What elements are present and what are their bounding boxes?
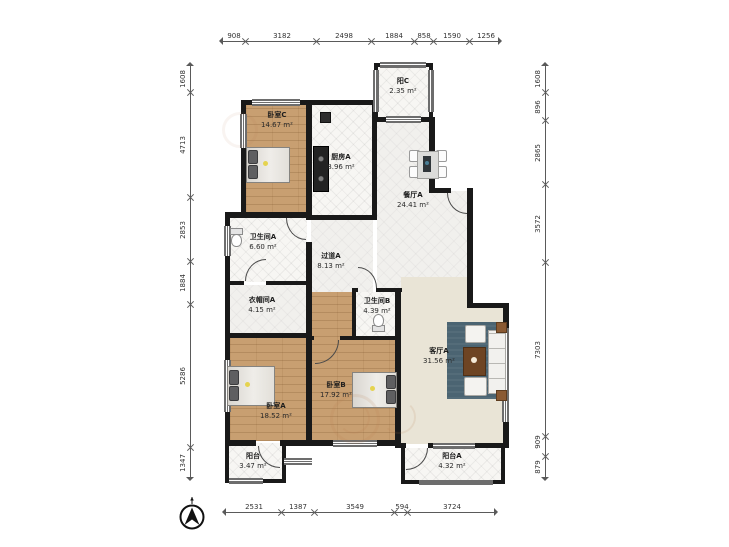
room-area: 4.39 m² (347, 306, 407, 316)
dimension-value: 3572 (533, 204, 543, 244)
dimension-tick (312, 37, 321, 46)
dimension-value: 2865 (533, 133, 543, 173)
window (380, 62, 426, 68)
kitchen-fixture (320, 112, 331, 123)
pillow (248, 165, 258, 179)
room-area: 4.15 m² (232, 305, 292, 315)
arrow-right-icon (494, 508, 498, 516)
room-name: 衣帽间A (232, 295, 292, 305)
room-label-bath-a: 卫生间A 6.60 m² (233, 232, 293, 252)
room-label-dining-a: 餐厅A 24.41 m² (383, 190, 443, 210)
room-area: 8.96 m² (312, 162, 370, 172)
floorplan-canvas: 卧室C 14.67 m² 厨房A 8.96 m² 阳C 2.35 m² 餐厅A … (0, 0, 729, 547)
room-name: 卫生间A (233, 232, 293, 242)
floor-living-a-upper (401, 277, 467, 307)
room-label-balcony: 阳台 3.47 m² (223, 451, 283, 471)
coffee-table-decor (471, 357, 477, 363)
room-area: 2.35 m² (375, 86, 431, 96)
dimension-value: 908 (214, 31, 254, 41)
room-label-bedroom-a: 卧室A 18.52 m² (246, 401, 306, 421)
pillow (248, 150, 258, 164)
wall (467, 188, 473, 308)
dimension-value: 1884 (178, 263, 188, 303)
room-area: 18.52 m² (246, 411, 306, 421)
dimension-tick (541, 180, 550, 189)
room-name: 卧室B (306, 380, 366, 390)
dimension-line (222, 41, 501, 42)
dimension-value: 2853 (178, 210, 188, 250)
side-table (496, 390, 507, 401)
room-area: 8.13 m² (301, 261, 361, 271)
room-area: 24.41 m² (383, 200, 443, 210)
room-area: 6.60 m² (233, 242, 293, 252)
window (386, 116, 421, 123)
dining-table (417, 151, 439, 179)
wall (225, 281, 244, 285)
wall (225, 440, 256, 446)
armchair (465, 325, 486, 343)
room-label-hallway-a: 过道A 8.13 m² (301, 251, 361, 271)
room-label-living-a: 客厅A 31.56 m² (409, 346, 469, 366)
dimension-line (545, 65, 546, 480)
room-label-bath-b: 卫生间B 4.39 m² (347, 296, 407, 316)
dimension-value: 1387 (278, 502, 318, 512)
watermark-circle (222, 112, 258, 148)
pillow (229, 370, 239, 385)
wall (501, 448, 505, 484)
watermark-swirl (338, 402, 370, 434)
room-area: 4.32 m² (422, 461, 482, 471)
room-label-balcony-c: 阳C 2.35 m² (375, 76, 431, 96)
wall (376, 288, 402, 292)
dimension-value: 1347 (178, 443, 188, 483)
room-label-balcony-a: 阳台A 4.32 m² (422, 451, 482, 471)
room-name: 客厅A (409, 346, 469, 356)
dimension-value: 1256 (466, 31, 506, 41)
window (252, 99, 300, 106)
window (433, 443, 475, 449)
wall (266, 281, 310, 285)
bed-cushion (263, 161, 268, 166)
room-name: 过道A (301, 251, 361, 261)
room-area: 31.56 m² (409, 356, 469, 366)
dimension-value: 2531 (234, 502, 274, 512)
sofa (488, 330, 506, 394)
room-name: 餐厅A (383, 190, 443, 200)
dimension-value: 879 (533, 447, 543, 487)
wall (374, 117, 386, 122)
room-label-closet-a: 衣帽间A 4.15 m² (232, 295, 292, 315)
dimension-value: 3724 (432, 502, 472, 512)
room-name: 厨房A (312, 152, 370, 162)
room-name: 阳台 (223, 451, 283, 461)
wall (401, 448, 405, 484)
side-table (496, 322, 507, 333)
room-name: 卫生间B (347, 296, 407, 306)
pillow (229, 386, 239, 401)
dimension-line (190, 65, 191, 480)
dimension-value: 2498 (324, 31, 364, 41)
bed-cushion (370, 386, 375, 391)
dimension-value: 896 (533, 87, 543, 127)
wall (352, 336, 400, 340)
room-area: 3.47 m² (223, 461, 283, 471)
room-label-kitchen-a: 厨房A 8.96 m² (312, 152, 370, 172)
armchair (464, 377, 487, 396)
room-name: 卧室C (247, 110, 307, 120)
watermark-swirl (382, 400, 416, 434)
wall (225, 333, 312, 338)
dimension-value: 594 (382, 502, 422, 512)
dimension-value: 4713 (178, 125, 188, 165)
dimension-value: 3549 (335, 502, 375, 512)
dimension-line (225, 512, 497, 513)
dining-table-decor (425, 161, 429, 165)
bed-cushion (245, 382, 250, 387)
dimension-tick (541, 258, 550, 267)
room-name: 阳C (375, 76, 431, 86)
arrow-left-icon (222, 508, 226, 516)
dimension-tick (186, 193, 195, 202)
wall (306, 215, 377, 220)
window (229, 478, 263, 484)
dimension-value: 7303 (533, 330, 543, 370)
dimension-value: 5286 (178, 356, 188, 396)
dimension-value: 3182 (262, 31, 302, 41)
room-name: 阳台A (422, 451, 482, 461)
dimension-value: 1608 (178, 59, 188, 99)
room-name: 卧室A (246, 401, 306, 411)
window (284, 458, 312, 465)
pillow (386, 375, 396, 389)
window (419, 480, 493, 485)
north-compass-icon (176, 496, 208, 532)
